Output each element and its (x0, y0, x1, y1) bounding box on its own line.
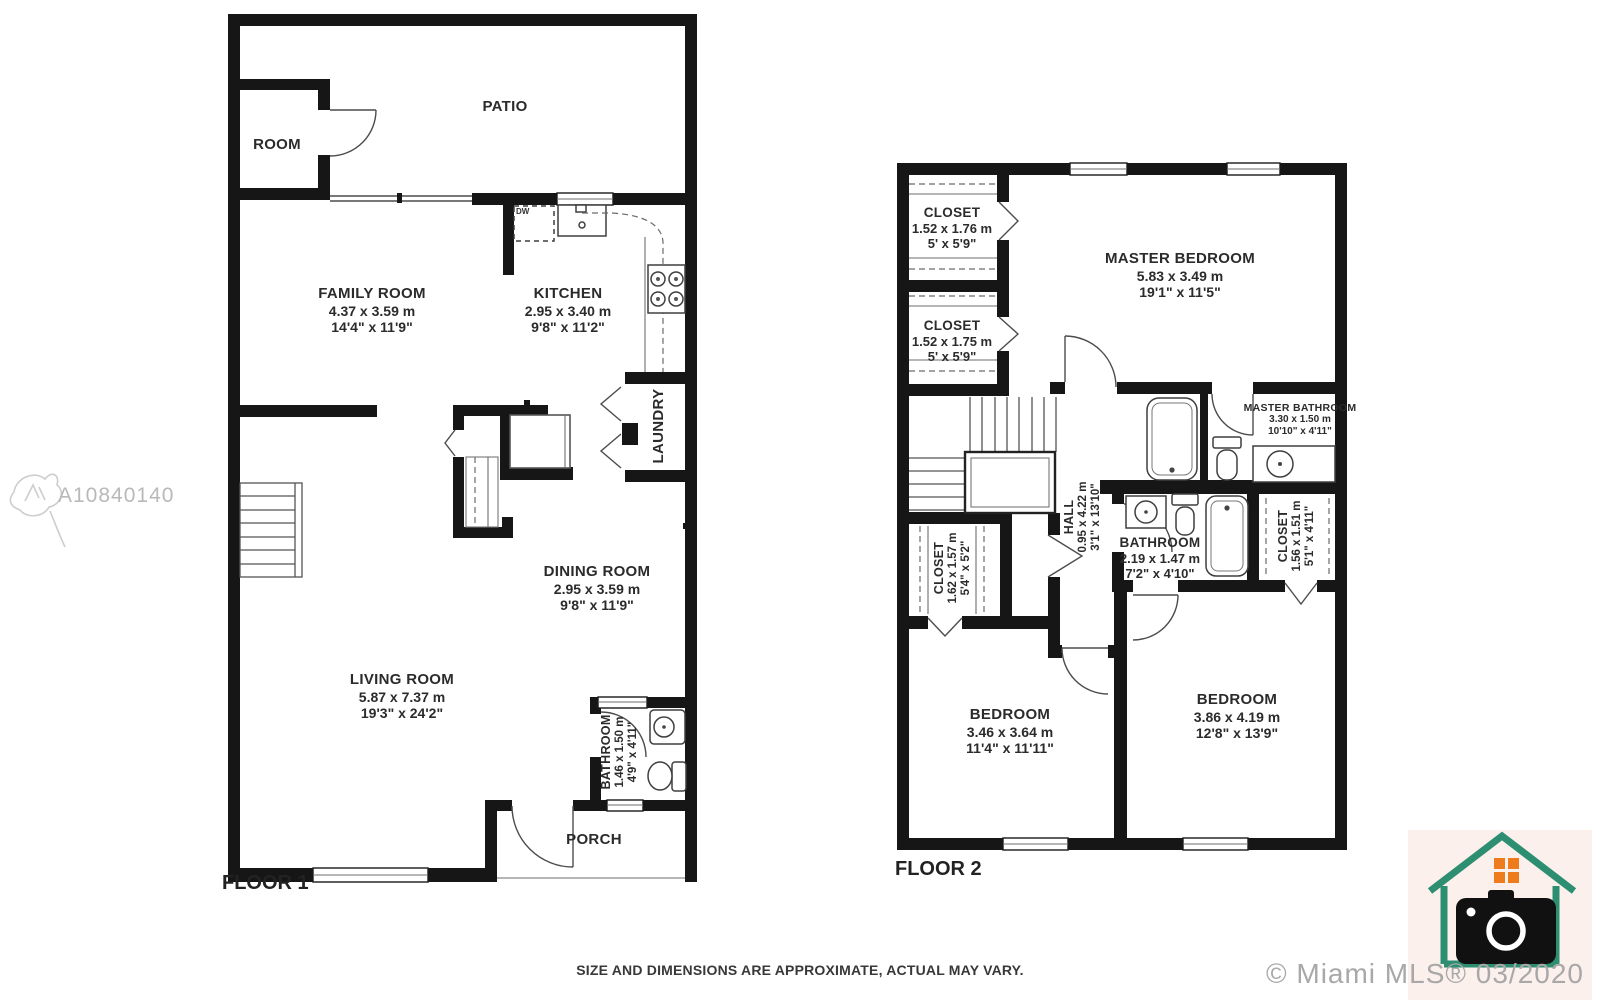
floor2-stairs (909, 397, 1056, 513)
label-kitchen: KITCHEN 2.95 x 3.40 m 9'8" x 11'2" (525, 285, 611, 335)
label-closet-left: CLOSET 1.62 x 1.57 m 5'4" x 5'2" (932, 533, 974, 604)
camera-icon (1456, 890, 1556, 964)
floor1-bathroom-fixtures (648, 710, 686, 791)
sink-icon (1126, 496, 1166, 528)
label-room: ROOM (253, 136, 301, 154)
bathtub-icon (1206, 496, 1248, 576)
copyright-text: © Miami MLS® 03/2020 (1266, 958, 1584, 990)
label-bedroom-right: BEDROOM 3.86 x 4.19 m 12'8" x 13'9" (1194, 691, 1280, 741)
label-hall: HALL 0.95 x 4.22 m 3'1" x 13'10" (1062, 482, 1104, 553)
label-bedroom-left: BEDROOM 3.46 x 3.64 m 11'4" x 11'11" (966, 706, 1054, 756)
sink-icon (650, 710, 685, 744)
mls-watermark-icon (10, 474, 65, 547)
mls-watermark-id: A10840140 (58, 484, 174, 508)
bathtub-icon (1147, 398, 1197, 480)
floorplan-page: ROOM PATIO FAMILY ROOM 4.37 x 3.59 m 14'… (0, 0, 1600, 1000)
toilet-icon (1172, 494, 1198, 535)
label-family-room: FAMILY ROOM 4.37 x 3.59 m 14'4" x 11'9" (318, 285, 425, 335)
label-closet-right: CLOSET 1.56 x 1.51 m 5'1" x 4'11" (1276, 501, 1318, 572)
label-master-bedroom: MASTER BEDROOM 5.83 x 3.49 m 19'1" x 11'… (1105, 250, 1255, 300)
stove-icon (648, 265, 685, 313)
toilet-icon (648, 762, 686, 791)
floor1-stairs (240, 483, 302, 577)
floorplan-drawing (0, 0, 1600, 1000)
label-bathroom-f1: BATHROOM 1.46 x 1.50 m 4'9" x 4'11" (599, 714, 641, 789)
label-living-room: LIVING ROOM 5.87 x 7.37 m 19'3" x 24'2" (350, 671, 454, 721)
floor2-title: FLOOR 2 (895, 858, 982, 881)
label-closet-top-2: CLOSET 1.52 x 1.75 m 5' x 5'9" (912, 318, 992, 364)
label-dishwasher: DW (516, 207, 529, 216)
floor1-title: FLOOR 1 (222, 872, 309, 895)
label-closet-top-1: CLOSET 1.52 x 1.76 m 5' x 5'9" (912, 205, 992, 251)
label-dining-room: DINING ROOM 2.95 x 3.59 m 9'8" x 11'9" (544, 563, 651, 613)
label-bathroom-f2: BATHROOM 2.19 x 1.47 m 7'2" x 4'10" (1120, 535, 1201, 581)
sink-icon (1253, 446, 1335, 482)
label-patio: PATIO (482, 98, 527, 116)
label-laundry: LAUNDRY (650, 389, 668, 464)
label-master-bathroom: MASTER BATHROOM 3.30 x 1.50 m 10'10" x 4… (1244, 402, 1357, 438)
label-porch: PORCH (566, 831, 622, 849)
toilet-icon (1213, 437, 1241, 480)
